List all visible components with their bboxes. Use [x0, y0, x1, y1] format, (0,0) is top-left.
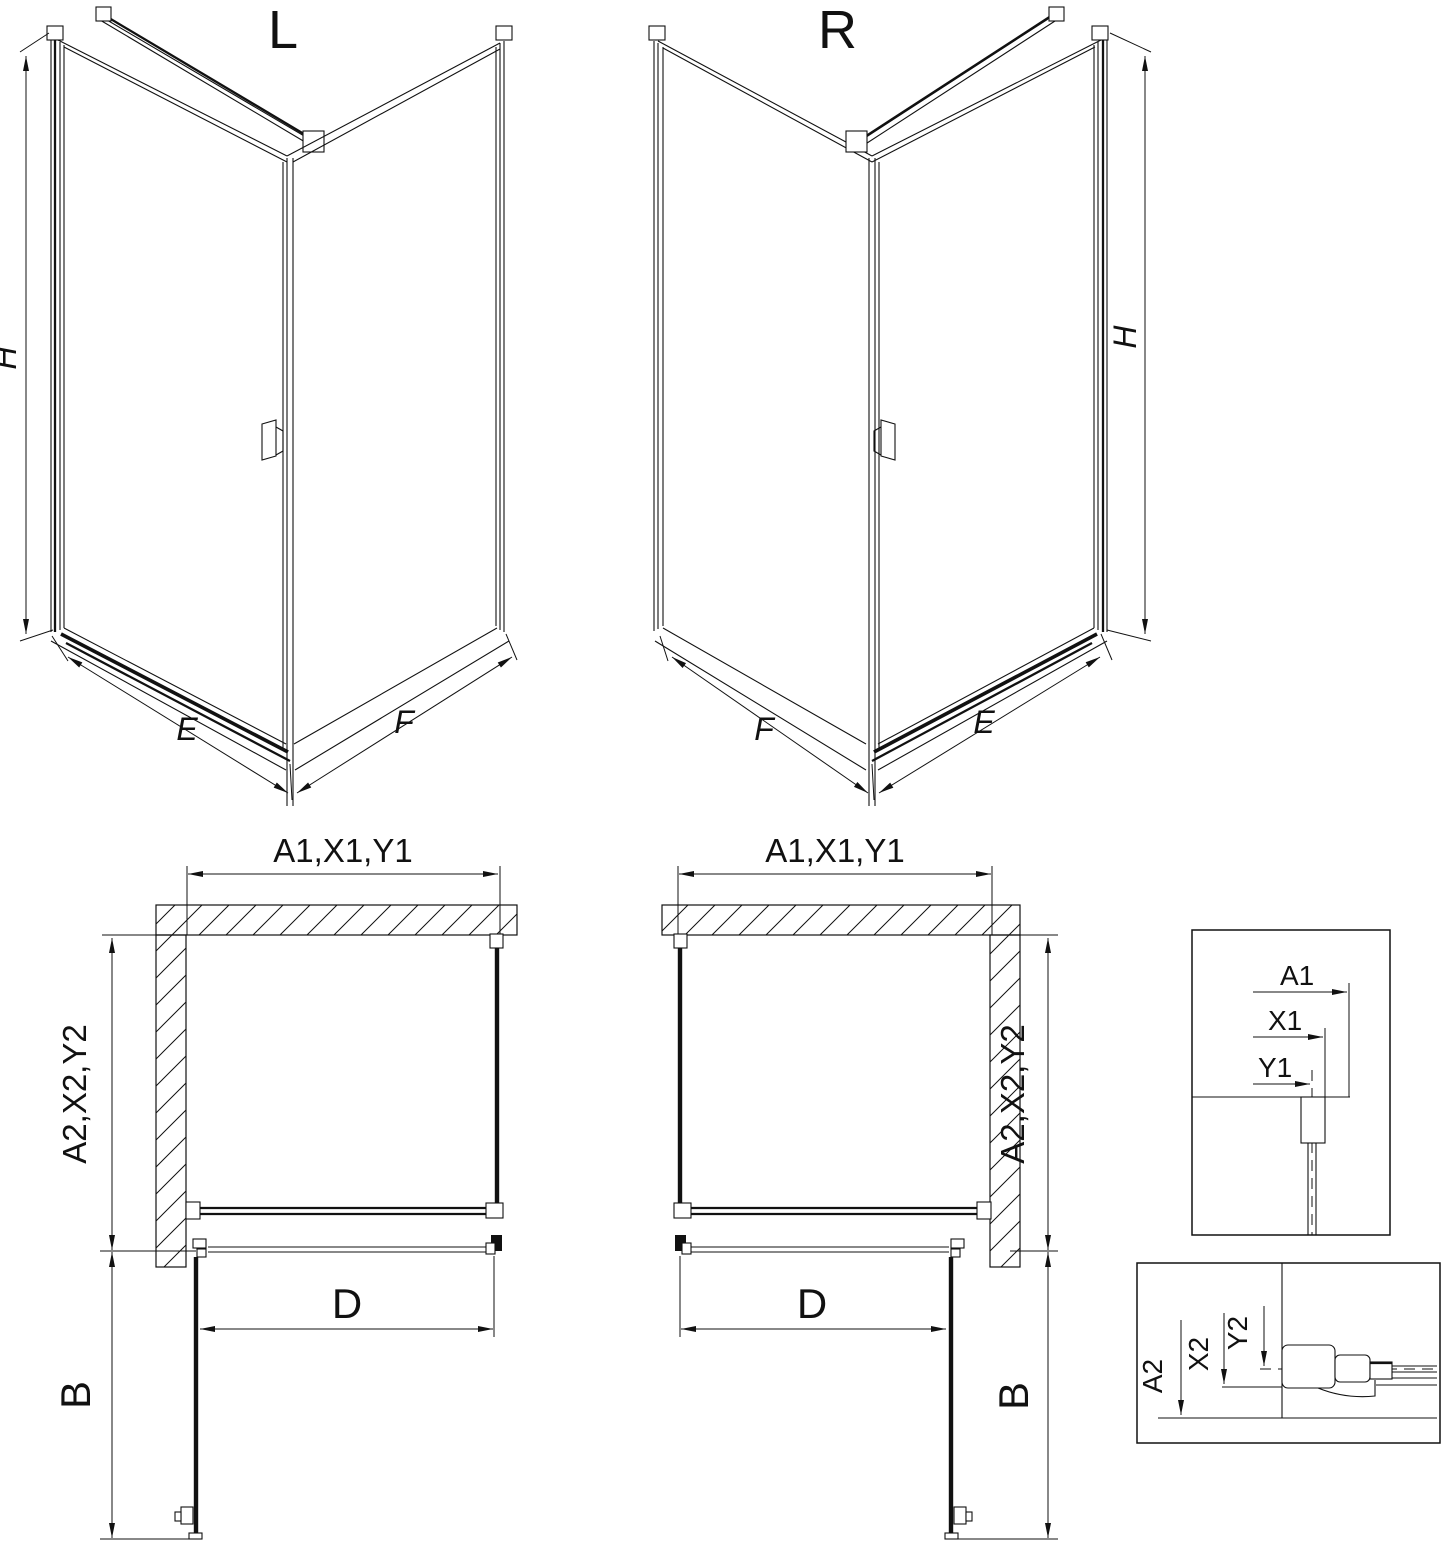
base-left-label: E — [176, 711, 198, 747]
variant-label-right: R — [818, 0, 857, 60]
detail-y2-label: Y2 — [1222, 1316, 1253, 1350]
support-bar-plan — [691, 1202, 991, 1219]
door-handle — [874, 420, 895, 460]
shower-enclosure-diagram: L H — [0, 0, 1446, 1546]
door-handle — [262, 420, 283, 460]
dim-base-right: F E — [660, 634, 1112, 800]
profile-cap — [47, 26, 63, 40]
plan-view-right: A1,X1,Y1 A2,X2,Y2 D — [662, 832, 1058, 1539]
door-sill — [208, 1247, 488, 1252]
width-dim-label: A1,X1,Y1 — [765, 832, 904, 869]
front-dim-label: B — [52, 1381, 99, 1409]
detail-a2-label: A2 — [1137, 1359, 1168, 1393]
corner-bracket — [486, 1203, 503, 1218]
front-dim-label: B — [990, 1382, 1037, 1410]
dim-front-right-plan: B — [952, 1252, 1058, 1539]
dim-door-right-plan: D — [680, 1256, 946, 1337]
variant-label-left: L — [268, 0, 298, 60]
detail-box-width: A1 X1 Y1 — [1192, 930, 1390, 1235]
dim-height-left: H — [0, 33, 53, 641]
depth-dim-label: A2,X2,Y2 — [994, 1024, 1031, 1163]
wall-bracket — [674, 934, 687, 948]
detail-a1-label: A1 — [1280, 960, 1314, 991]
wall-profile — [1301, 1097, 1325, 1143]
fixed-panel-plan — [674, 934, 691, 1251]
wall-hatch — [156, 905, 517, 1267]
height-label-right: H — [1107, 325, 1143, 349]
dim-height-right: H — [1107, 33, 1151, 641]
corner-bracket — [674, 1203, 691, 1218]
fixed-panel-plan — [486, 934, 503, 1251]
wall-bracket — [977, 1202, 991, 1219]
door-dim-label: D — [797, 1280, 827, 1327]
base-left-label: F — [754, 711, 776, 747]
hinge-profile — [1282, 1345, 1437, 1397]
door-sill — [689, 1247, 949, 1252]
detail-x1-label: X1 — [1268, 1005, 1302, 1036]
door-handle — [181, 1507, 193, 1524]
dim-door-left-plan: D — [200, 1256, 494, 1337]
width-dim-label: A1,X1,Y1 — [273, 832, 412, 869]
door-handle — [954, 1507, 966, 1524]
door-dim-label: D — [332, 1280, 362, 1327]
detail-x2-label: X2 — [1183, 1337, 1214, 1371]
wall-bracket — [490, 934, 503, 948]
open-door-plan — [175, 1257, 202, 1539]
iso-view-right: R H — [649, 0, 1151, 806]
open-door-plan — [945, 1257, 972, 1539]
height-label-left: H — [0, 346, 23, 370]
corner-bracket — [846, 131, 867, 152]
iso-view-left: L H — [0, 0, 517, 806]
dim-base-left: E F — [52, 634, 517, 800]
plan-view-left: A1,X1,Y1 A2,X2,Y2 — [52, 832, 517, 1539]
technical-drawing-page: L H — [0, 0, 1446, 1546]
detail-y1-label: Y1 — [1258, 1052, 1292, 1083]
wall-bracket — [186, 1202, 200, 1219]
base-right-label: E — [973, 704, 995, 740]
support-bar-plan — [186, 1202, 486, 1219]
depth-dim-label: A2,X2,Y2 — [56, 1024, 93, 1163]
dim-front-left-plan: B — [52, 1252, 196, 1539]
base-right-label: F — [394, 704, 416, 740]
detail-box-depth: A2 X2 Y2 — [1137, 1263, 1440, 1443]
wall-hatch — [662, 905, 1020, 1267]
